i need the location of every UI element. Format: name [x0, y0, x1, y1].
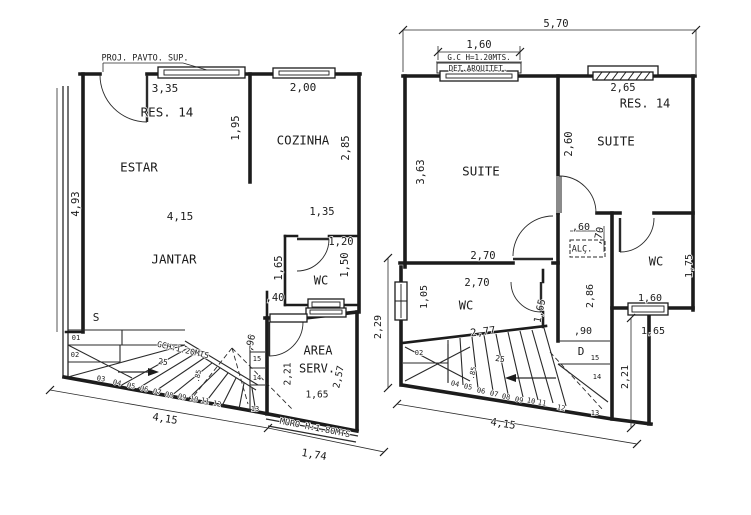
note-proj-pavto-sup: PROJ. PAVTO. SUP. — [102, 54, 189, 64]
areaserv-door-swing — [269, 322, 303, 356]
dim-suite1-bottom: 2,70 — [470, 250, 495, 262]
tread-14-left: 14 — [253, 374, 261, 382]
room-serv: SERV. — [299, 362, 335, 376]
dim-suite2-left: 2,60 — [563, 131, 575, 156]
room-suite-left: SUITE — [462, 164, 500, 179]
suite2-door-swing — [559, 176, 596, 213]
left-plan-party-wall — [63, 86, 68, 377]
note-gc: G.C H=1.20MTS. — [447, 53, 510, 62]
room-cozinha: COZINHA — [277, 133, 330, 148]
floor-plan-svg: PROJ. PAVTO. SUP.3,35RES. 141,952,00COZI… — [0, 0, 751, 515]
tread-01: 01 — [72, 334, 80, 342]
wcr-door-swing — [620, 218, 654, 252]
tread-02-right: 02 — [415, 349, 423, 357]
dim-suite2-window: 2,65 — [610, 82, 635, 94]
dim-cozinha-right: 2,85 — [340, 135, 352, 160]
dim-wc-165: 1,65 — [273, 255, 285, 280]
room-wc-bottomleft: WC — [459, 299, 473, 313]
wc-door-swing — [297, 239, 329, 271]
tread-04-right: 04 — [450, 379, 460, 389]
dim-bottom-right-415: 4,15 — [490, 416, 517, 432]
tread-05-right: 05 — [463, 382, 473, 392]
window-suite2-top — [588, 66, 658, 80]
tread-07: 07 — [152, 387, 162, 397]
window-cozinha-top — [273, 68, 335, 78]
tread-12: 12 — [212, 399, 222, 409]
room-suite-right: SUITE — [597, 134, 635, 149]
dim-wc-150: 1,50 — [339, 252, 351, 277]
dim-wcbl-top: 2,70 — [464, 277, 489, 289]
dim-left-height: 4,93 — [70, 191, 82, 216]
room-res14-left: RES. 14 — [141, 105, 194, 120]
tread-13-left: 13 — [251, 405, 259, 413]
dim-areaserv-bottom: 1,65 — [306, 390, 329, 401]
stair-down-arrowhead — [505, 374, 516, 382]
window-wcr-bottom — [628, 303, 668, 315]
room-res14-right: RES. 14 — [620, 97, 671, 111]
dim-gc-160: 1,60 — [466, 39, 491, 51]
tread-06-right: 06 — [476, 386, 486, 396]
dim-wcbl-right: 1,65 — [533, 298, 549, 324]
room-area: AREA — [304, 344, 334, 358]
dim-areaserv-left: 2,21 — [283, 362, 294, 385]
note-muro: MURO H:1.80MTS — [279, 417, 351, 440]
tread-09: 09 — [177, 392, 187, 402]
dim-suite1-left: 3,63 — [415, 159, 427, 184]
dim-overall-570: 5,70 — [543, 18, 568, 30]
note-alc: ALÇ. — [572, 245, 592, 255]
suite2-door-leaf — [556, 176, 562, 213]
floor-plan-drawing: PROJ. PAVTO. SUP.3,35RES. 141,952,00COZI… — [0, 0, 751, 515]
suite1-door-swing — [513, 216, 553, 256]
tread-width-85: .85 — [193, 369, 203, 383]
dim-stub-40: ,40 — [266, 292, 285, 304]
dim-alc-60: ,60 — [572, 222, 590, 233]
tread-13-right: 13 — [591, 409, 599, 417]
tread-02: 02 — [71, 351, 79, 359]
tread-depth-25: 25 — [158, 357, 169, 367]
dim-jantar-width: 4,15 — [167, 210, 194, 223]
right-plan-left-wall — [401, 76, 405, 385]
dim-wc-120: 1,20 — [328, 236, 353, 248]
note-det-arquitet: DET.ARQUITET. — [449, 64, 508, 73]
dim-landing-96: ,96 — [244, 333, 258, 352]
window-areaserv — [270, 308, 346, 322]
tread-07-right: 07 — [489, 389, 499, 399]
dim-wall-195: 1,95 — [230, 115, 242, 140]
room-estar: ESTAR — [120, 160, 158, 175]
dim-wcr-right: 1,75 — [684, 254, 695, 278]
stair-up-label: S — [93, 311, 100, 324]
dim-wcr-window: 1,60 — [638, 293, 662, 304]
dim-bottom-left-415: 4,15 — [152, 411, 179, 427]
room-jantar: JANTAR — [151, 252, 197, 267]
dim-landing-90: ,90 — [574, 326, 592, 337]
right-plan-dims — [384, 26, 700, 448]
tread-10: 10 — [189, 394, 199, 404]
dim-estar-top: 3,35 — [152, 82, 179, 95]
dim-wcbl-window: 1,05 — [419, 285, 430, 309]
tread-08: 08 — [164, 390, 174, 400]
room-wc-right: WC — [649, 255, 663, 269]
stair-down-label: D — [578, 345, 585, 358]
stair-up-arrowhead — [148, 368, 159, 376]
left-plan — [46, 63, 388, 456]
tread-11: 11 — [200, 396, 210, 406]
room-wc-left: WC — [314, 274, 328, 288]
tread-15-right: 15 — [591, 354, 599, 362]
dim-terrace-221: 2,21 — [620, 365, 631, 389]
dim-cozinha-top: 2,00 — [290, 81, 317, 94]
dim-muro-174: 1,74 — [301, 447, 328, 463]
right-plan — [384, 26, 700, 448]
window-wcbl-left — [395, 282, 407, 320]
dim-between-229: 2,29 — [373, 315, 384, 339]
dim-wcbl-bottom: 2,77 — [470, 325, 497, 340]
tread-14-right: 14 — [593, 373, 601, 381]
dim-passage-135: 1,35 — [309, 206, 334, 218]
dim-hall-286: 2,86 — [585, 284, 596, 308]
tread-03: 03 — [96, 374, 105, 383]
tread-15-left: 15 — [253, 355, 261, 363]
tread-depth-25-right: 25 — [495, 354, 506, 364]
dim-wcr-below: 1,65 — [641, 326, 665, 337]
